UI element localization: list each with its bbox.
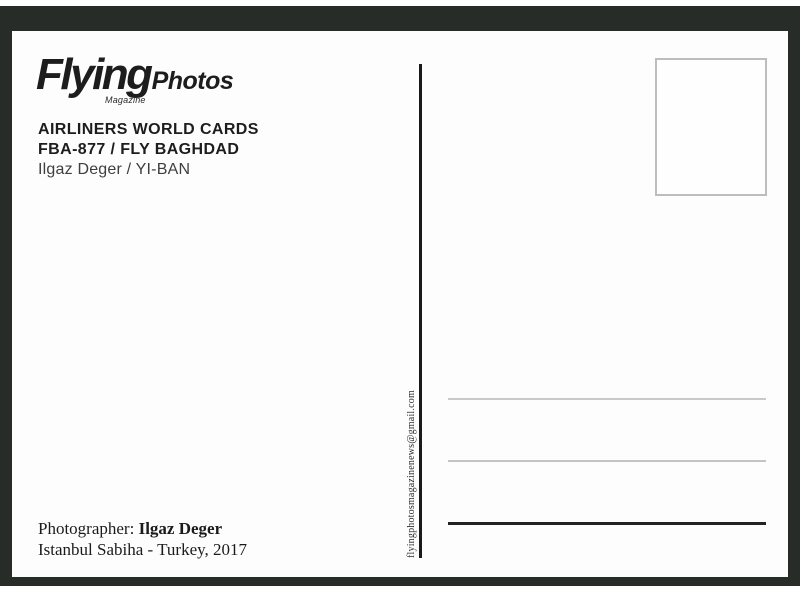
photographer-name: Ilgaz Deger: [139, 519, 223, 538]
contact-email-vertical: flyingphotosmagazinenews@gmail.com: [406, 390, 417, 558]
scanned-postcard-page: Flying Photos Magazine AIRLINERS WORLD C…: [0, 0, 800, 600]
card-number: FBA-877 / FLY BAGHDAD: [38, 140, 259, 160]
card-info-block: AIRLINERS WORLD CARDS FBA-877 / FLY BAGH…: [38, 120, 259, 180]
photographer-label: Photographer:: [38, 519, 134, 538]
logo-tagline-magazine: Magazine: [105, 95, 146, 105]
logo-wordmark: Flying Photos: [36, 53, 266, 97]
photo-location-year: Istanbul Sabiha - Turkey, 2017: [38, 539, 247, 560]
stamp-box: [655, 58, 767, 196]
photographer-credit: Photographer: Ilgaz Deger Istanbul Sabih…: [38, 518, 247, 560]
address-line-1: [448, 398, 766, 400]
flyingphotos-logo: Flying Photos Magazine: [36, 53, 266, 113]
address-line-2: [448, 460, 766, 462]
series-title: AIRLINERS WORLD CARDS: [38, 120, 259, 140]
address-line-3: [448, 522, 766, 525]
postcard-back: Flying Photos Magazine AIRLINERS WORLD C…: [12, 31, 788, 577]
photographer-registration: Ilgaz Deger / YI-BAN: [38, 160, 259, 180]
postcard-dark-frame: Flying Photos Magazine AIRLINERS WORLD C…: [0, 6, 800, 586]
logo-brand-photos: Photos: [152, 69, 234, 94]
photographer-credit-line: Photographer: Ilgaz Deger: [38, 518, 247, 539]
center-divider-line: [419, 64, 422, 558]
logo-brand-flying: Flying: [36, 53, 151, 97]
